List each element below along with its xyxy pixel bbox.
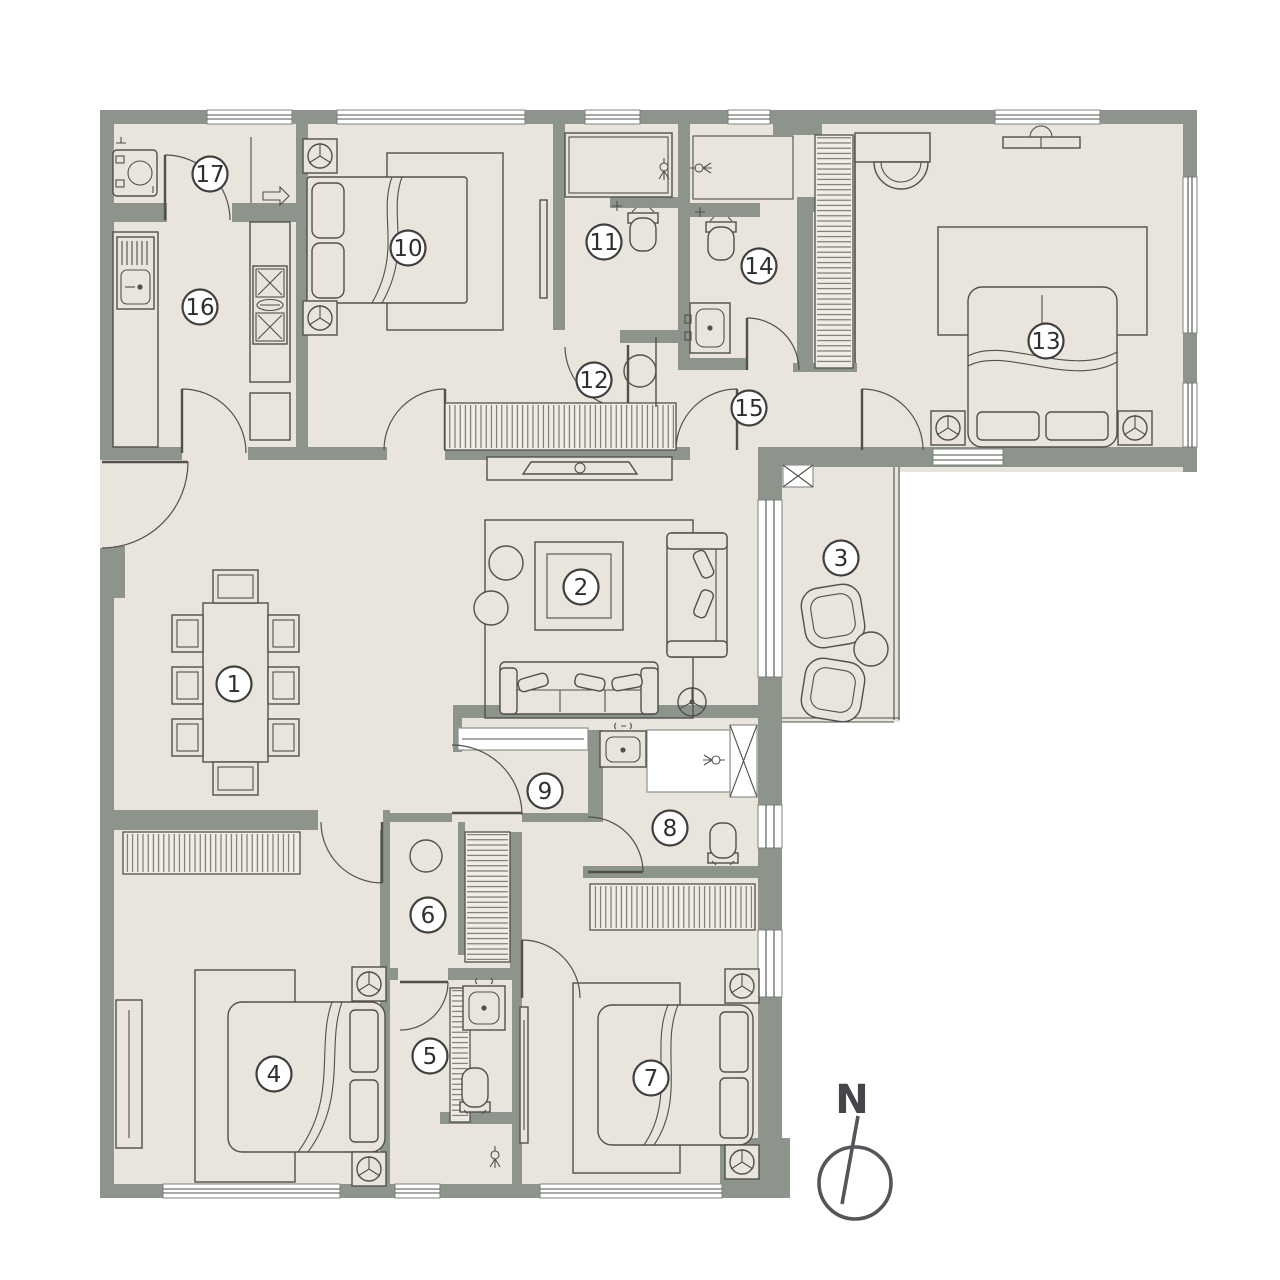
room-label-16: 16 — [183, 290, 218, 325]
room-number: 5 — [423, 1044, 438, 1070]
shaft-icon — [730, 725, 757, 797]
bed-icon — [598, 1005, 753, 1145]
entrance-opening — [100, 460, 114, 548]
room-label-7: 7 — [634, 1061, 669, 1096]
wardrobe-icon — [445, 403, 676, 450]
stove-icon — [253, 266, 287, 344]
kitchen-sink-icon — [117, 237, 154, 309]
nightstand-lamp-icon — [931, 411, 965, 445]
nightstand-lamp-icon — [352, 1152, 386, 1186]
wardrobe-icon — [590, 884, 755, 930]
toilet-icon — [460, 1068, 490, 1114]
shower-enclosure — [565, 133, 672, 197]
window-right-8 — [758, 805, 782, 848]
toilet-icon — [706, 217, 736, 260]
wall-mirror-icon — [520, 1007, 528, 1143]
wall-niche — [458, 728, 588, 750]
sink-icon — [463, 978, 505, 1030]
side-table — [489, 546, 523, 580]
window-13-bottom — [933, 449, 1003, 465]
dining-chair — [172, 667, 203, 704]
nightstand-lamp-icon — [1118, 411, 1152, 445]
window-bottom-7 — [540, 1184, 722, 1198]
window-right-7 — [758, 930, 782, 997]
balcony-table — [854, 632, 888, 666]
window-top-10 — [337, 110, 525, 124]
room-label-9: 9 — [528, 774, 563, 809]
dining-chair — [213, 762, 258, 795]
room-number: 14 — [744, 254, 773, 280]
room-number: 6 — [421, 903, 436, 929]
room-number: 16 — [185, 295, 214, 321]
north-label: N — [835, 1077, 868, 1123]
room-number: 4 — [267, 1062, 282, 1088]
room-number: 3 — [834, 546, 849, 572]
room-label-10: 10 — [391, 231, 426, 266]
north-compass: N — [819, 1077, 891, 1219]
room-number: 7 — [644, 1066, 659, 1092]
floor-plan-page: N 1234567891011121314151617 — [0, 0, 1280, 1280]
window-right-13a — [1183, 177, 1197, 333]
room-number: 11 — [589, 230, 618, 256]
room-label-12: 12 — [577, 363, 612, 398]
bed-icon — [228, 1002, 385, 1152]
room-label-4: 4 — [257, 1057, 292, 1092]
bed-icon — [307, 177, 467, 303]
balcony-sliding-door — [758, 500, 782, 677]
kitchen-cabinet — [250, 393, 290, 440]
sink-icon — [685, 303, 730, 353]
nightstand-lamp-icon — [725, 969, 759, 1003]
dining-chair — [213, 570, 258, 603]
shaft-icon — [783, 465, 813, 487]
shower-tray — [647, 730, 730, 792]
room-label-3: 3 — [824, 541, 859, 576]
dining-chair — [268, 615, 299, 652]
room-number: 13 — [1031, 329, 1060, 355]
wall-mirror-icon — [540, 200, 547, 298]
room-label-14: 14 — [742, 249, 777, 284]
bed-icon — [968, 287, 1117, 447]
room-number: 9 — [538, 779, 553, 805]
room-label-2: 2 — [564, 570, 599, 605]
room-number: 10 — [393, 236, 422, 262]
nightstand-lamp-icon — [303, 301, 337, 335]
room-label-17: 17 — [193, 157, 228, 192]
tv-console — [487, 457, 672, 480]
window-top-11 — [585, 110, 640, 124]
nightstand-lamp-icon — [303, 139, 337, 173]
window-bottom-5 — [395, 1184, 440, 1198]
sofa-icon — [667, 533, 727, 657]
dresser-icon — [116, 1000, 142, 1148]
room-number: 8 — [663, 816, 678, 842]
hallway-6 — [410, 840, 442, 872]
side-table — [474, 591, 508, 625]
room-number: 12 — [579, 368, 608, 394]
nightstand-lamp-icon — [725, 1145, 759, 1179]
dining-chair — [268, 719, 299, 756]
toilet-icon — [628, 208, 658, 251]
room-number: 17 — [195, 162, 224, 188]
room-label-11: 11 — [587, 225, 622, 260]
wardrobe-icon — [123, 832, 300, 874]
sofa-icon — [500, 662, 658, 714]
dining-chair — [172, 615, 203, 652]
room-label-1: 1 — [217, 667, 252, 702]
window-bottom-4 — [163, 1184, 340, 1198]
room-number: 1 — [227, 672, 242, 698]
tv-icon — [523, 462, 637, 474]
wardrobe-icon — [815, 135, 853, 368]
window-top-13 — [995, 110, 1100, 124]
room-label-15: 15 — [732, 391, 767, 426]
washing-machine-icon — [113, 150, 157, 196]
pouf-icon — [410, 840, 442, 872]
room-label-5: 5 — [413, 1039, 448, 1074]
nightstand-lamp-icon — [352, 967, 386, 1001]
room-label-13: 13 — [1029, 324, 1064, 359]
window-right-13b — [1183, 383, 1197, 447]
room-number: 15 — [734, 396, 763, 422]
balcony-chair — [799, 656, 868, 725]
toilet-icon — [708, 823, 738, 865]
dining-chair — [172, 719, 203, 756]
floor-plan-drawing: N 1234567891011121314151617 — [0, 0, 1280, 1280]
room-number: 2 — [574, 575, 589, 601]
dining-chair — [268, 667, 299, 704]
window-top-14 — [728, 110, 770, 124]
room-label-6: 6 — [411, 898, 446, 933]
window-top-17 — [207, 110, 292, 124]
wardrobe-icon — [465, 832, 510, 962]
room-label-8: 8 — [653, 811, 688, 846]
